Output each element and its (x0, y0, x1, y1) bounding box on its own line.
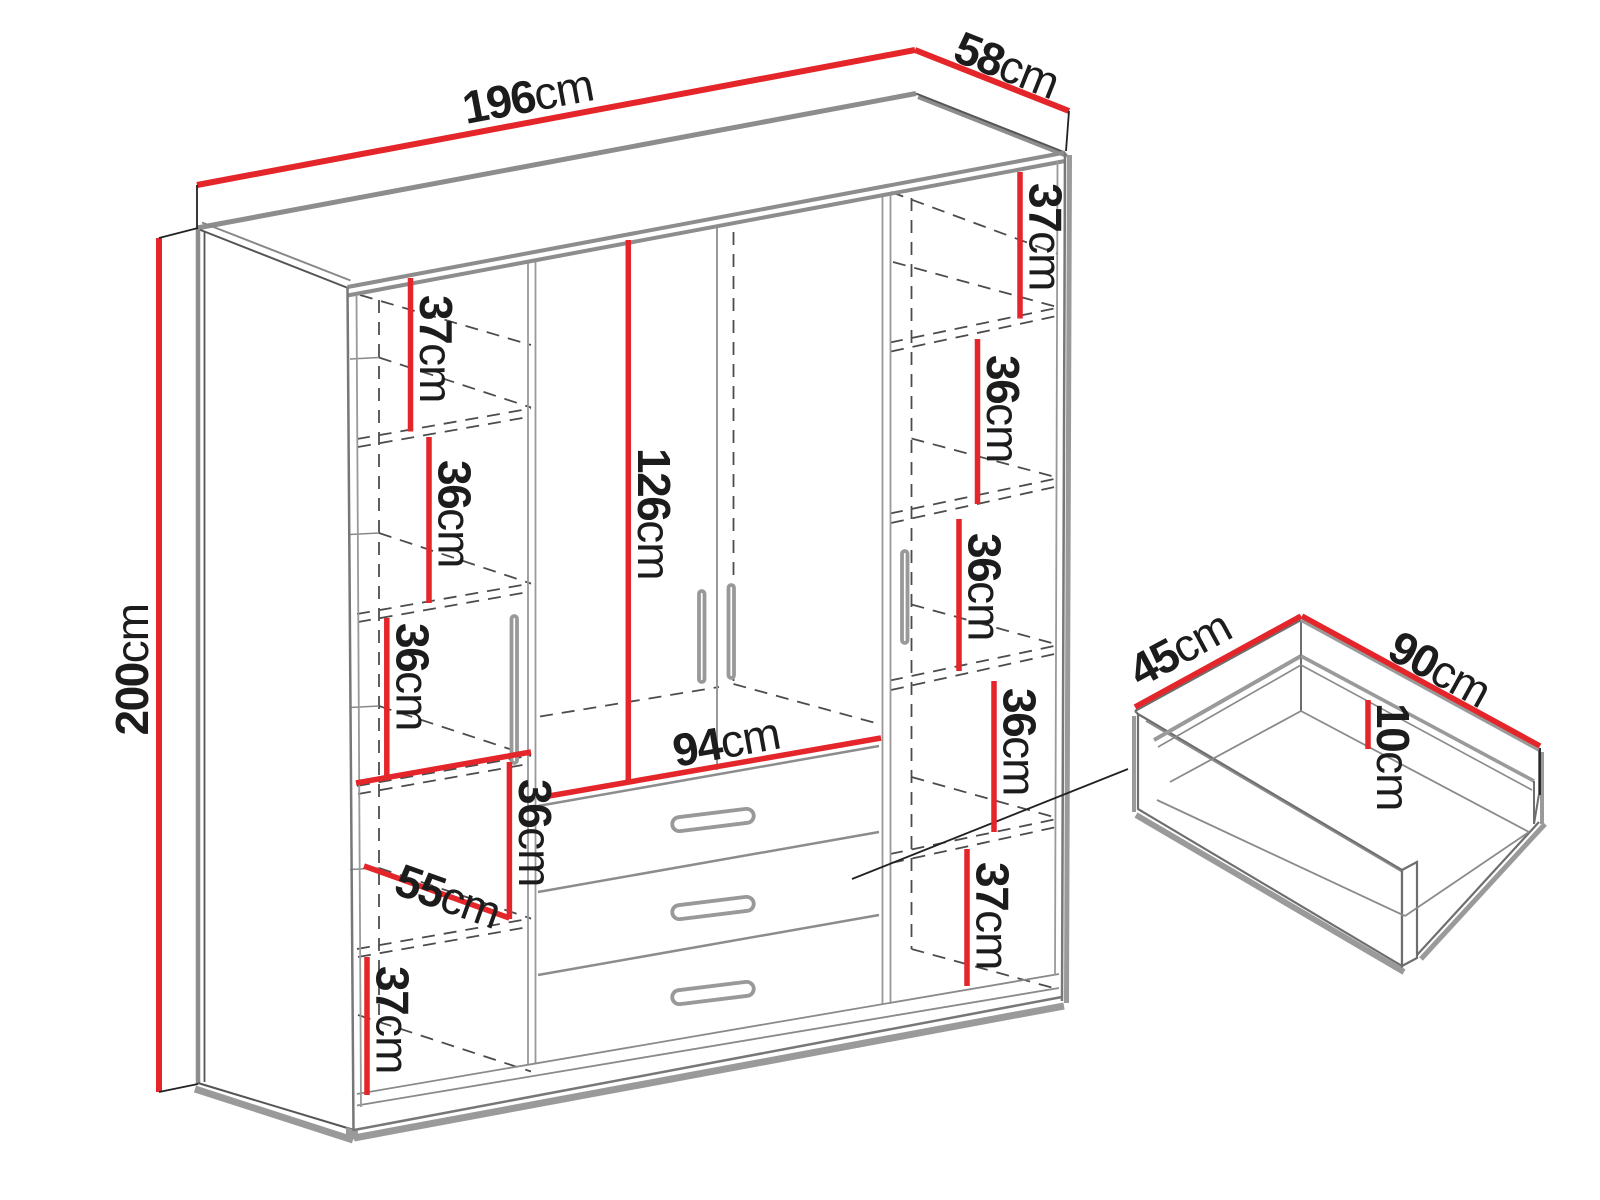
svg-text:36cm: 36cm (977, 355, 1029, 463)
svg-text:36cm: 36cm (959, 533, 1011, 641)
svg-text:37cm: 37cm (1020, 183, 1072, 291)
svg-text:37cm: 37cm (367, 966, 419, 1074)
svg-text:36cm: 36cm (387, 623, 439, 731)
svg-text:37cm: 37cm (410, 295, 462, 403)
svg-text:37cm: 37cm (967, 862, 1019, 970)
svg-text:126cm: 126cm (628, 448, 680, 580)
svg-text:10cm: 10cm (1367, 703, 1419, 811)
svg-text:36cm: 36cm (994, 688, 1046, 796)
svg-text:36cm: 36cm (509, 779, 561, 887)
svg-text:36cm: 36cm (429, 460, 481, 568)
svg-text:200cm: 200cm (106, 604, 158, 736)
